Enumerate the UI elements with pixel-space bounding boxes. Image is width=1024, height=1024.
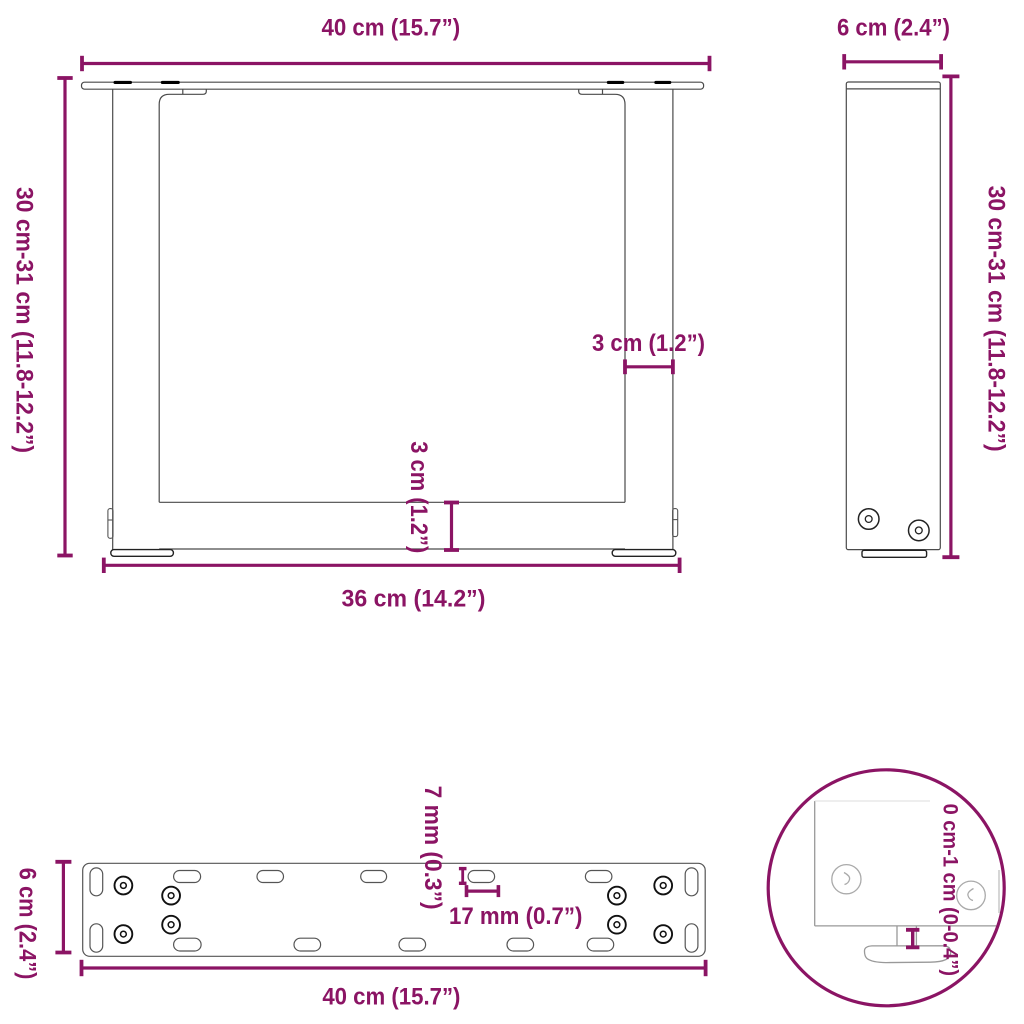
- svg-text:7 mm (0.3”): 7 mm (0.3”): [419, 786, 446, 910]
- svg-text:40 cm (15.7”): 40 cm (15.7”): [321, 15, 460, 42]
- svg-text:6 cm (2.4”): 6 cm (2.4”): [837, 15, 950, 42]
- svg-text:6 cm (2.4”): 6 cm (2.4”): [13, 868, 40, 980]
- svg-text:0 cm-1 cm (0-0.4”): 0 cm-1 cm (0-0.4”): [939, 804, 962, 976]
- svg-text:36 cm (14.2”): 36 cm (14.2”): [342, 585, 486, 612]
- svg-text:40 cm (15.7”): 40 cm (15.7”): [322, 983, 460, 1010]
- svg-text:17 mm (0.7”): 17 mm (0.7”): [449, 903, 582, 930]
- svg-text:30 cm-31 cm (11.8-12.2”): 30 cm-31 cm (11.8-12.2”): [11, 187, 38, 453]
- svg-text:3 cm (1.2”): 3 cm (1.2”): [592, 330, 705, 357]
- svg-text:30 cm-31 cm (11.8-12.2”): 30 cm-31 cm (11.8-12.2”): [983, 186, 1010, 452]
- svg-text:3 cm (1.2”): 3 cm (1.2”): [405, 441, 432, 553]
